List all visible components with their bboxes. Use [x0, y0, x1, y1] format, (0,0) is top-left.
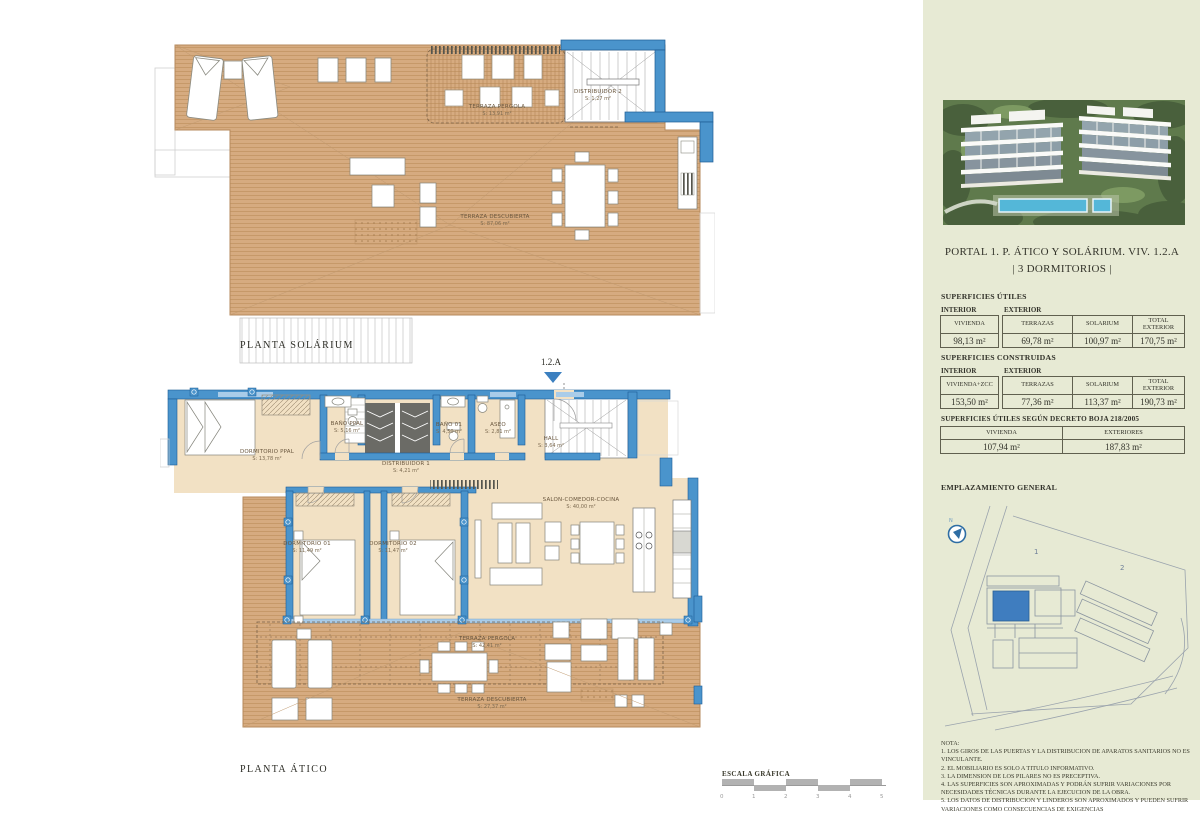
svg-text:N: N	[949, 518, 953, 524]
neighbour-outline	[160, 439, 169, 467]
unit-marker-label: 1.2.A	[541, 357, 561, 367]
unit-marker-arrow-icon	[544, 372, 562, 383]
construidas-table: VIVIENDA+ZCC 153,50 m² TERRAZAS 77,36 m²…	[941, 377, 1185, 409]
nota-block: NOTA: 1. LOS GIROS DE LAS PUERTAS Y LA D…	[941, 740, 1194, 814]
room-label-terraza-pergola-sol: TERRAZA PERGOLA S: 13,91 m²	[469, 104, 525, 118]
solarium-plan-title: PLANTA SOLÁRIUM	[240, 340, 354, 351]
room-label-bano-ppal: BAÑO PPAL S: 5,16 m²	[331, 421, 364, 435]
utiles-exterior-label: EXTERIOR	[1004, 306, 1041, 314]
scale-ticks: 0 1 2 3 4 5	[720, 794, 884, 800]
site-building-2	[1066, 581, 1165, 662]
corridor-trellis	[430, 480, 498, 489]
pool	[993, 195, 1119, 216]
stair-flights	[365, 403, 430, 455]
construidas-heading: SUPERFICIES CONSTRUIDAS	[941, 353, 1056, 362]
utiles-table: VIVIENDA 98,13 m² TERRAZAS 69,78 m² SOLA…	[941, 316, 1185, 348]
site-courts	[993, 638, 1077, 668]
planter-benches	[318, 58, 391, 82]
room-label-distribuidor-1: DISTRIBUIDOR 1 S: 4,21 m²	[382, 461, 430, 475]
atico-floor-plan	[160, 383, 725, 778]
room-label-terraza-descubierta: TERRAZA DESCUBIERTA S: 27,37 m²	[457, 697, 526, 711]
room-label-dorm-01: DORMITORIO 01 S: 11,49 m²	[283, 541, 331, 555]
nota-line: 3. LA DIMENSION DE LOS PILARES NO ES PRE…	[941, 773, 1194, 781]
north-compass-icon: N	[949, 518, 966, 543]
svg-text:1: 1	[752, 794, 756, 800]
decreto-table: VIVIENDA 107,94 m² EXTERIORES 187,83 m²	[941, 427, 1185, 454]
nota-line: 2. EL MOBILIARIO ES SOLO A TITULO INFORM…	[941, 765, 1194, 773]
room-label-hall: HALL S: 3,64 m²	[538, 436, 564, 450]
construidas-interior-label: INTERIOR	[941, 367, 976, 375]
site-plan-map: N 1 2	[935, 498, 1195, 733]
highlighted-unit-block	[993, 591, 1029, 621]
svg-text:3: 3	[816, 794, 820, 800]
nota-line: 4. LAS SUPERFICIES SON APROXIMADAS Y POD…	[941, 781, 1194, 797]
room-label-aseo: ASEO S: 2,81 m²	[485, 422, 511, 436]
plan-sheet-page: { "sheet": { "solarium": { "title": "PLA…	[0, 0, 1200, 800]
room-label-dorm-02: DORMITORIO 02 S: 11,47 m²	[369, 541, 417, 555]
utiles-heading: SUPERFICIES ÚTILES	[941, 292, 1027, 301]
room-label-salon: SALON-COMEDOR-COCINA S: 40,00 m²	[543, 497, 620, 511]
svg-text:1: 1	[1034, 548, 1038, 556]
room-label-bano-01: BAÑO 01 S: 4,50 m²	[436, 422, 462, 436]
room-label-terraza-pergola: TERRAZA PERGOLA S: 42,41 m²	[459, 636, 515, 650]
neighbour-outline	[155, 150, 232, 177]
atico-plan-title: PLANTA ÁTICO	[240, 764, 328, 775]
scale-bar: 0 1 2 3 4 5	[718, 777, 918, 800]
svg-text:0: 0	[720, 794, 724, 800]
neighbour-outline	[155, 68, 175, 175]
site-roads	[945, 506, 1188, 730]
room-label-dorm-ppal: DORMITORIO PPAL S: 13,78 m²	[240, 449, 294, 463]
svg-text:4: 4	[848, 794, 852, 800]
decreto-heading: SUPERFICIES ÚTILES SEGÚN DECRETO BOJA 21…	[941, 415, 1139, 423]
svg-text:2: 2	[784, 794, 788, 800]
room-label-terraza-descubierta-sol: TERRAZA DESCUBIERTA S: 87,06 m²	[460, 214, 529, 228]
nota-line: 1. LOS GIROS DE LAS PUERTAS Y LA DISTRIB…	[941, 748, 1194, 764]
outdoor-counter	[678, 137, 697, 209]
room-label-distribuidor-2: DISTRIBUIDOR 2 S: 1,27 m²	[574, 89, 622, 103]
building-render-photo	[943, 100, 1185, 225]
svg-text:2: 2	[1120, 564, 1124, 572]
utiles-interior-label: INTERIOR	[941, 306, 976, 314]
site-block-numbers: 1 2	[1034, 548, 1124, 572]
sheet-title-line1: PORTAL 1. P. ÁTICO Y SOLÁRIUM. VIV. 1.2.…	[928, 246, 1196, 258]
sheet-title-line2: | 3 DORMITORIOS |	[928, 263, 1196, 275]
solarium-floor-plan	[150, 35, 715, 370]
construidas-exterior-label: EXTERIOR	[1004, 367, 1041, 375]
roof-outline-right	[700, 213, 715, 313]
svg-text:5: 5	[880, 794, 884, 800]
emplazamiento-heading: EMPLAZAMIENTO GENERAL	[941, 483, 1057, 492]
nota-line: NOTA:	[941, 740, 1194, 748]
